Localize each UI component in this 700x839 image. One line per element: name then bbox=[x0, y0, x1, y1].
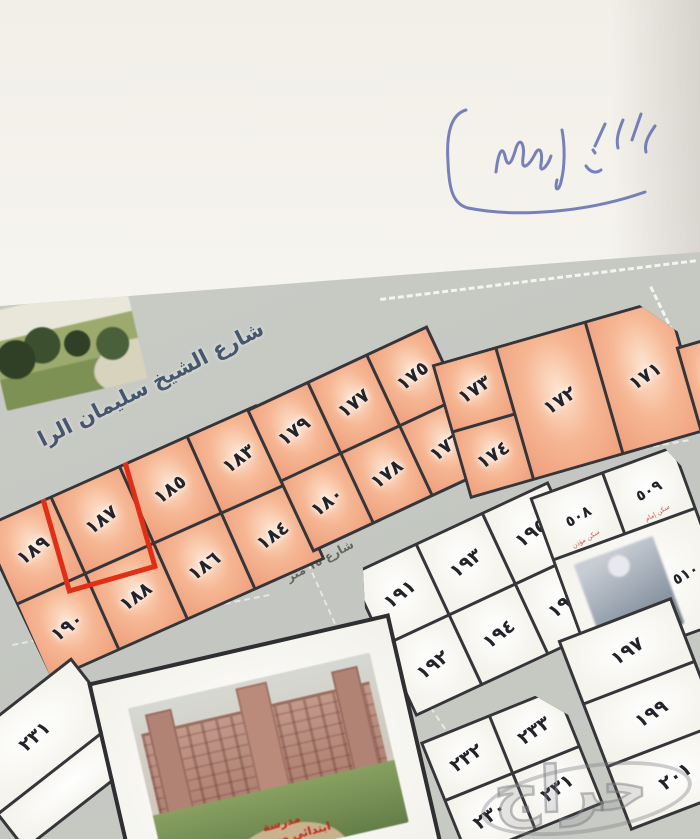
school-photo: مدرسة ابتدائي ومتوسط bbox=[128, 653, 409, 839]
subdivision-map: شارع الشيخ سليمان الرا شارع ١٥ متر شارع … bbox=[0, 240, 700, 839]
street-dashed-line bbox=[380, 259, 696, 301]
handwritten-annotation bbox=[438, 92, 673, 237]
school-plot-500: ٥٠٠ مدرسة ابتدائي ومتوسط bbox=[87, 613, 443, 839]
scanned-plot-map: شارع الشيخ سليمان الرا شارع ١٥ متر شارع … bbox=[0, 0, 700, 839]
haraj-watermark: حراج bbox=[492, 748, 700, 839]
